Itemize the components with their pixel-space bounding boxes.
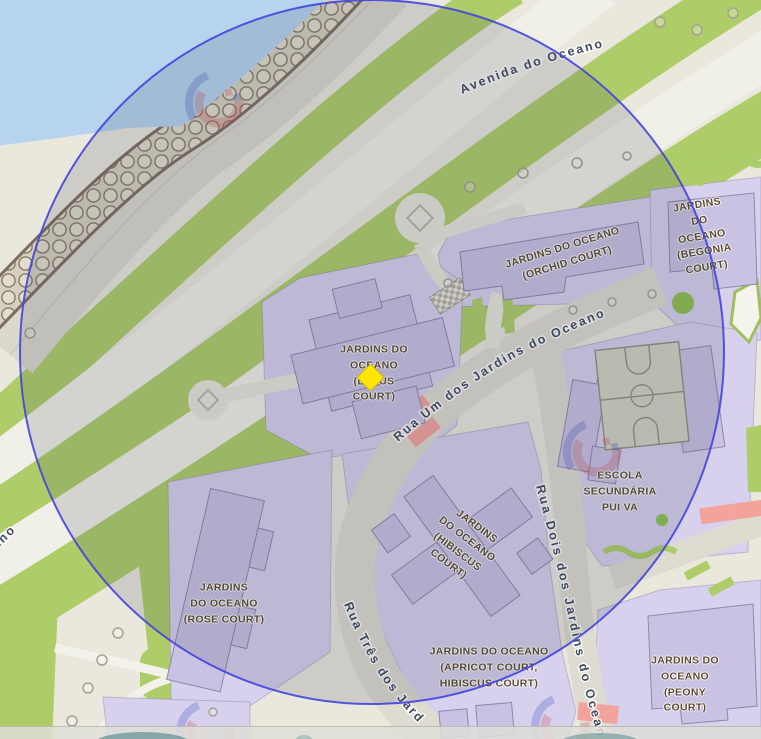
basketball-court xyxy=(595,342,689,450)
building-peony xyxy=(648,604,757,724)
teal-shape xyxy=(95,732,190,739)
map-base-layer xyxy=(0,0,761,739)
teal-shape xyxy=(295,735,313,739)
map-canvas[interactable]: Avenida do Oceano eano Rua Um dos Jardin… xyxy=(0,0,761,739)
bottom-panel-edge[interactable] xyxy=(0,726,761,739)
teal-shape xyxy=(560,733,640,739)
